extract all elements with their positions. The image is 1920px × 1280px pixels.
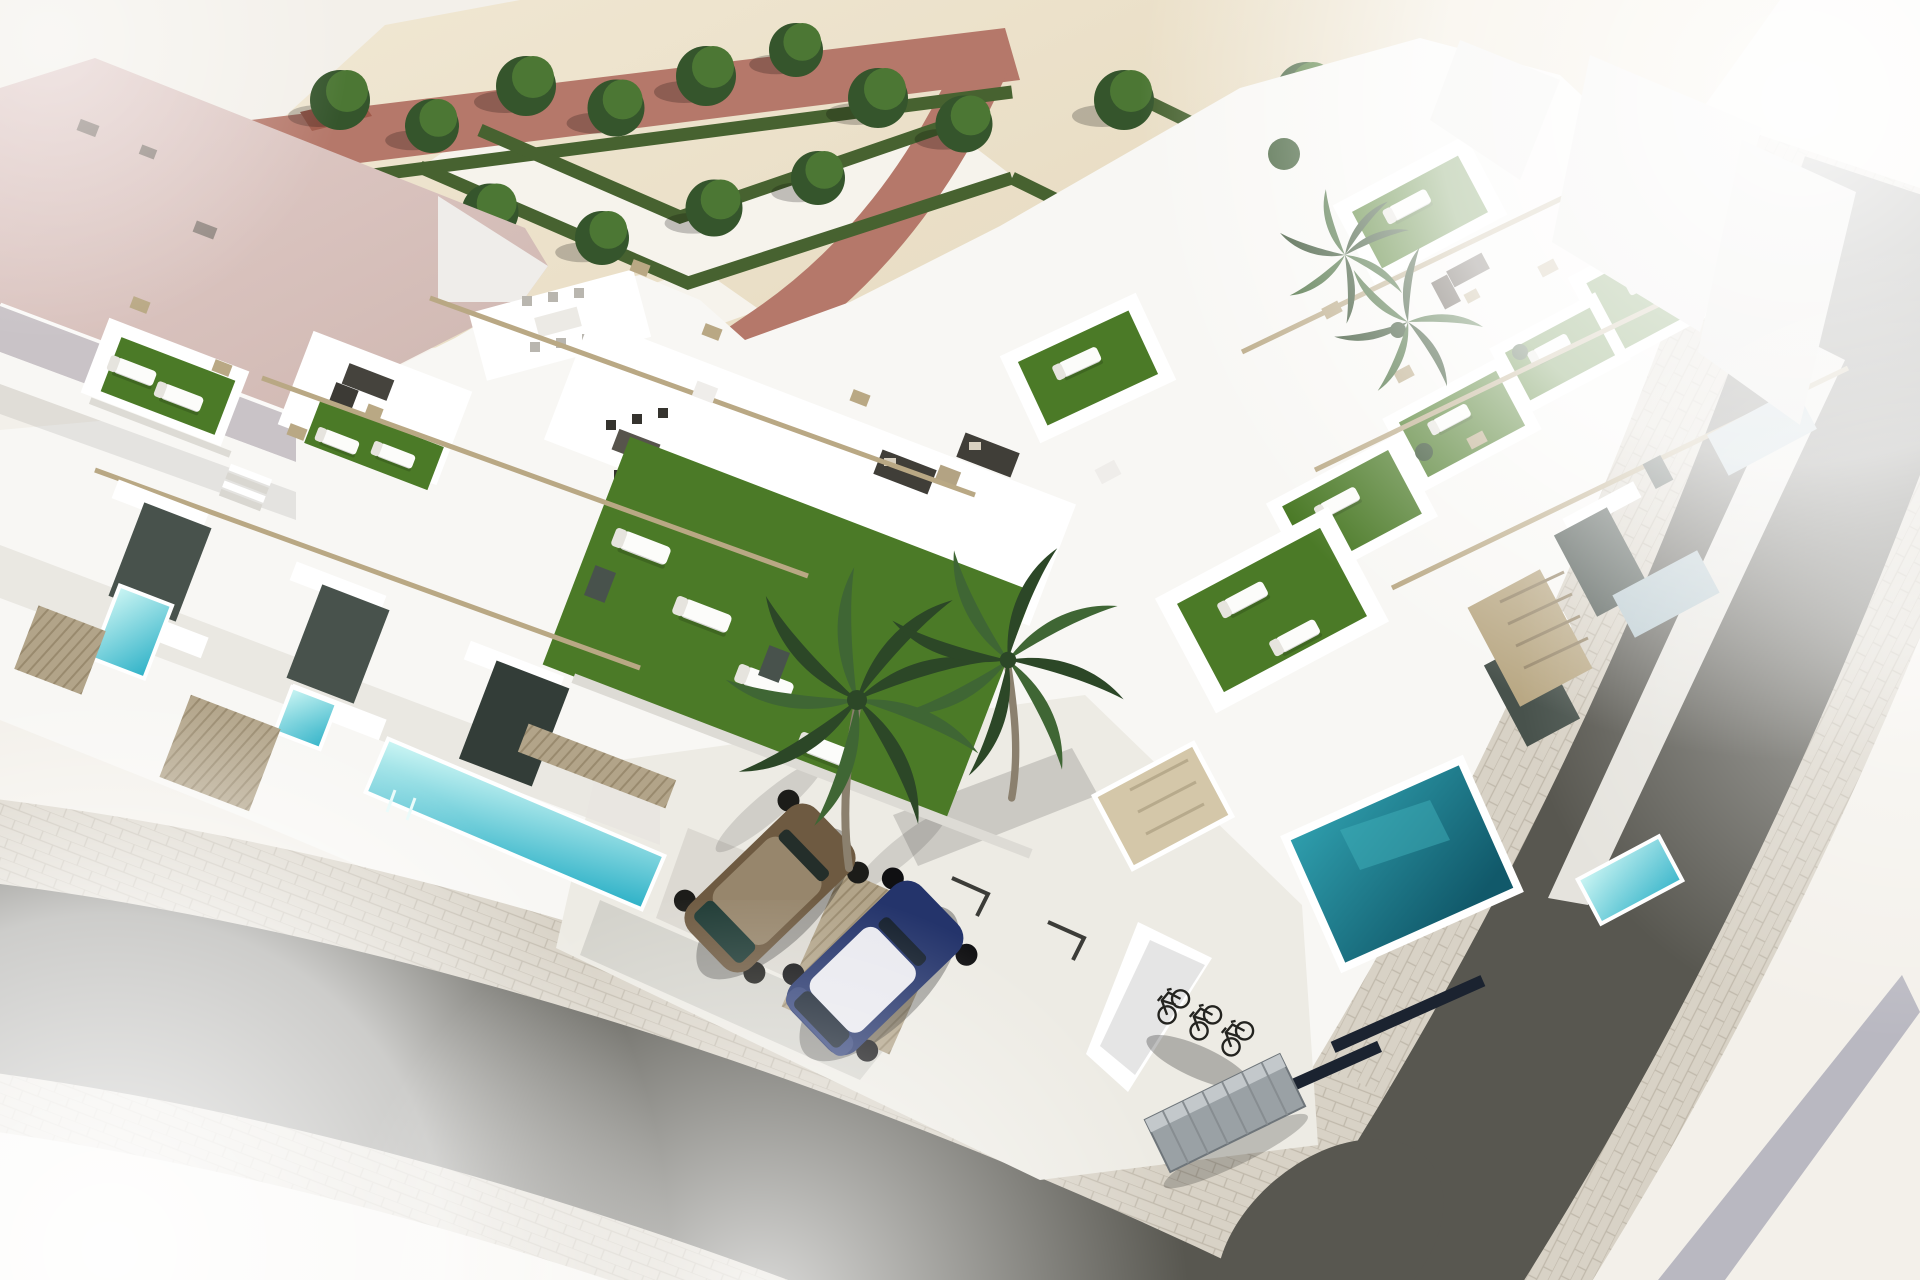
chair (632, 414, 642, 424)
chair (606, 420, 616, 430)
vignette-right (1520, 240, 1920, 1040)
chair (548, 292, 558, 302)
chair (530, 342, 540, 352)
cushion (969, 442, 981, 450)
chair (522, 296, 532, 306)
render-canvas (0, 0, 1920, 1280)
architectural-render (0, 0, 1920, 1280)
palm-crown (1000, 652, 1017, 669)
vignette-top-left (0, 0, 380, 340)
chair (658, 408, 668, 418)
vignette-bottom (330, 900, 1190, 1280)
chair (574, 288, 584, 298)
palm-crown (847, 690, 867, 710)
